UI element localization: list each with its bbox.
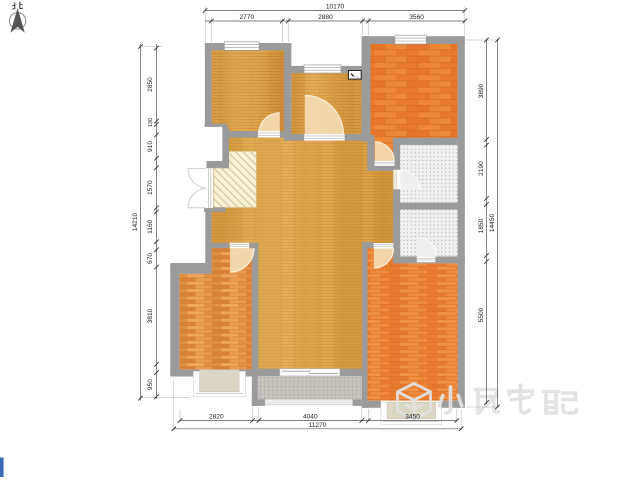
svg-text:4040: 4040 [303,414,318,421]
svg-text:3450: 3450 [405,414,420,421]
svg-text:2770: 2770 [239,14,254,21]
svg-text:910: 910 [147,141,154,152]
svg-text:2820: 2820 [209,414,224,421]
svg-text:3890: 3890 [478,83,485,98]
svg-text:1160: 1160 [147,219,154,234]
svg-text:670: 670 [147,253,154,264]
svg-text:3810: 3810 [147,308,154,323]
svg-text:10170: 10170 [326,4,345,11]
svg-text:14450: 14450 [489,214,496,233]
svg-text:3560: 3560 [409,14,424,21]
svg-text:1850: 1850 [478,218,485,233]
svg-text:130: 130 [148,118,154,127]
svg-text:5500: 5500 [478,307,485,322]
svg-text:2190: 2190 [478,161,485,176]
svg-text:2880: 2880 [318,14,333,21]
svg-text:11270: 11270 [309,422,327,429]
svg-text:14210: 14210 [132,213,139,232]
svg-text:2850: 2850 [147,77,154,92]
svg-text:1570: 1570 [147,180,154,195]
svg-text:950: 950 [147,379,154,390]
